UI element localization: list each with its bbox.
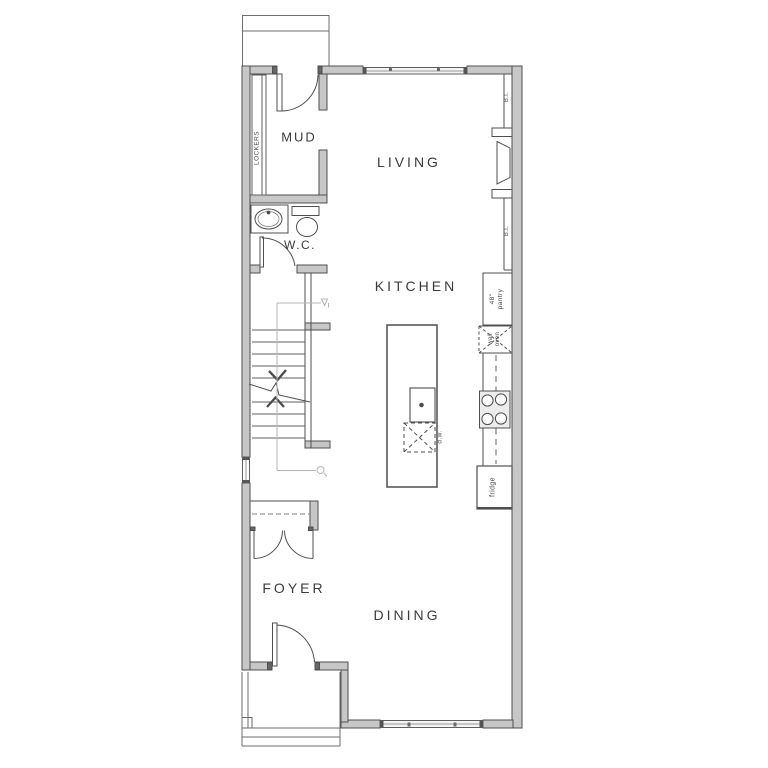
right-wall [512,66,522,728]
mud-entry-door [273,67,323,112]
wc-fixtures [251,205,319,237]
window-mullion [389,68,392,72]
toilet-tank [292,207,319,216]
living-window [363,68,467,75]
bottom-wall-right [483,720,513,728]
window-mullion [437,68,440,72]
windows [243,68,484,728]
walk-line-start-marker [322,299,328,306]
stair-treads [252,330,305,438]
window-mullion [408,723,411,727]
wall-oven-label: wall oven [488,332,502,346]
room-label-mud: MUD [281,130,317,145]
room-label-living: LIVING [377,154,441,170]
stair-wall-cap-top [305,323,330,330]
jog-wall [341,662,348,722]
faucet-dot [267,211,270,214]
window-mullion [454,723,457,727]
mud-wc-wall [250,195,327,203]
lockers-label: LOCKERS [254,131,261,165]
island-faucet-dot [420,403,424,407]
stair-wall-cap-bottom [305,441,330,448]
kitchen-island [387,325,437,487]
room-label-kitchen: KITCHEN [375,278,457,294]
built-in-label-lower: B.I. [504,226,510,236]
closet-side-wall [310,501,318,530]
room-label-dining: DINING [374,607,441,623]
stair-window [243,457,250,483]
stair-break-line [249,383,310,402]
fireplace [492,128,512,198]
cooktop [480,391,511,428]
mud-living-partition-upper [319,74,327,110]
wc-south-wall-right [297,265,327,273]
dining-window [380,721,483,728]
wc-south-wall-left [250,265,260,273]
front-porch [242,672,340,746]
room-label-wc: W.C. [284,238,316,252]
floor-plan-drawing [0,0,768,768]
porch-post [242,718,252,729]
room-label-foyer: FOYER [262,580,325,596]
built-in-label-upper: B.I. [504,92,510,102]
dishwasher [404,423,435,452]
dishwasher-label: d.w. [437,430,444,443]
pantry-label: 48" pantry [489,289,505,309]
left-wall-lower [242,483,250,670]
top-porch [243,16,330,67]
fridge-label: fridge [490,477,497,497]
floor-plan: LIVING KITCHEN DINING FOYER MUD W.C. LOC… [0,0,768,768]
walk-line-end-marker [317,467,324,474]
toilet-bowl [297,218,318,237]
foyer-closet-doors [250,501,318,559]
staircase [249,273,311,448]
top-wall-mid [318,66,363,74]
left-wall-upper [242,66,250,457]
front-door [268,623,320,670]
